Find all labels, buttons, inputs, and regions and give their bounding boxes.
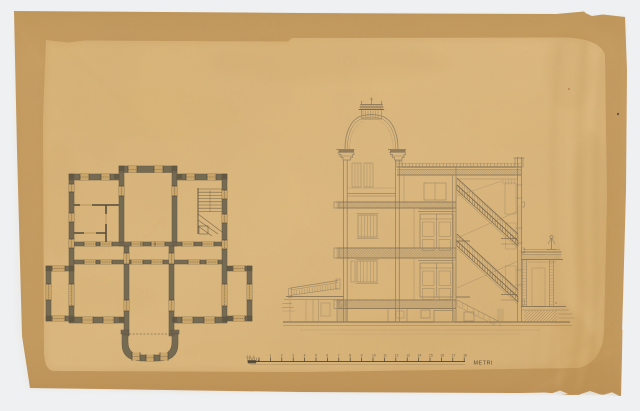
svg-text:17: 17 bbox=[452, 354, 456, 358]
svg-text:12: 12 bbox=[395, 354, 399, 358]
svg-text:1: 1 bbox=[253, 355, 255, 359]
svg-text:6: 6 bbox=[326, 354, 328, 358]
svg-text:10: 10 bbox=[372, 354, 376, 358]
svg-text:2: 2 bbox=[281, 354, 283, 358]
svg-text:13: 13 bbox=[406, 354, 410, 358]
svg-text:16: 16 bbox=[440, 354, 444, 358]
svg-text:METRI: METRI bbox=[474, 361, 494, 367]
svg-text:3: 3 bbox=[292, 354, 294, 358]
svg-text:1: 1 bbox=[269, 354, 271, 358]
svg-text:7: 7 bbox=[338, 354, 340, 358]
svg-text:14: 14 bbox=[418, 354, 422, 358]
svg-text:18: 18 bbox=[463, 354, 467, 358]
svg-text:5: 5 bbox=[315, 354, 317, 358]
svg-text:15: 15 bbox=[429, 354, 433, 358]
svg-text:11: 11 bbox=[383, 354, 387, 358]
svg-text:9: 9 bbox=[361, 354, 363, 358]
svg-text:4: 4 bbox=[304, 354, 306, 358]
svg-text:8: 8 bbox=[349, 354, 351, 358]
svg-text:0,5: 0,5 bbox=[247, 355, 252, 359]
